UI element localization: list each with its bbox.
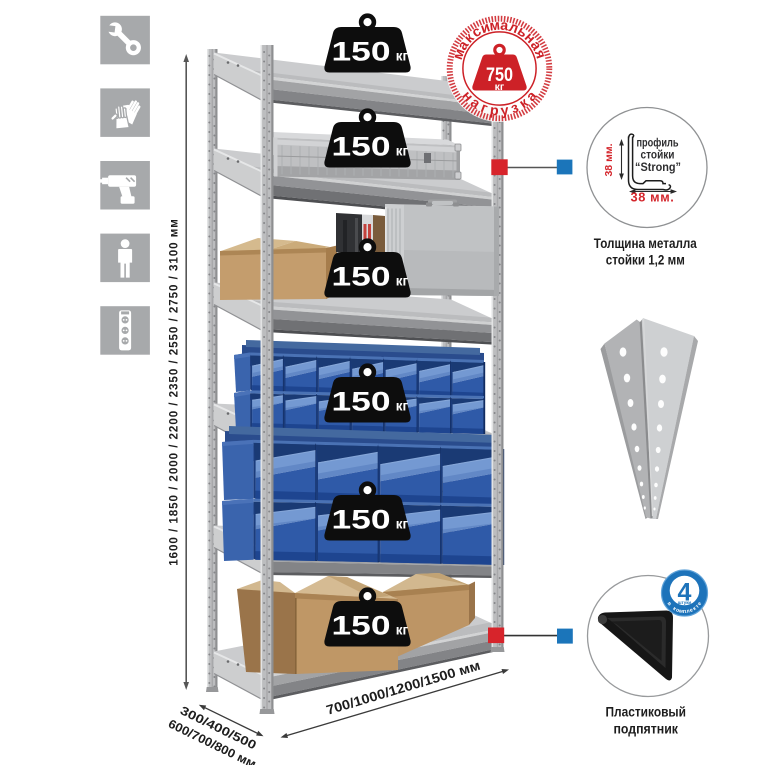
svg-text:38 мм.: 38 мм. (631, 190, 675, 205)
svg-text:кг: кг (396, 274, 409, 289)
svg-text:38 мм.: 38 мм. (603, 143, 615, 176)
svg-text:150: 150 (332, 386, 391, 417)
svg-text:подпятник: подпятник (613, 722, 678, 737)
svg-text:150: 150 (332, 610, 391, 641)
svg-text:150: 150 (332, 36, 391, 67)
svg-text:кг: кг (396, 399, 409, 414)
svg-text:кг: кг (396, 623, 409, 638)
svg-text:150: 150 (332, 131, 391, 162)
svg-text:штуки: штуки (678, 600, 692, 605)
svg-text:профиль: профиль (637, 138, 679, 150)
svg-text:“Strong”: “Strong” (635, 162, 681, 174)
svg-text:Толщина металла: Толщина металла (594, 236, 697, 251)
svg-text:150: 150 (332, 504, 391, 535)
svg-text:кг: кг (396, 49, 409, 64)
svg-text:стойки: стойки (641, 150, 675, 162)
svg-text:кг: кг (495, 81, 505, 93)
svg-text:кг: кг (396, 517, 409, 532)
svg-text:150: 150 (332, 261, 391, 292)
svg-text:стойки 1,2 мм: стойки 1,2 мм (606, 253, 685, 268)
svg-text:кг: кг (396, 144, 409, 159)
svg-text:Пластиковый: Пластиковый (605, 705, 686, 720)
svg-text:1600 / 1850 / 2000 / 2200 / 23: 1600 / 1850 / 2000 / 2200 / 2350 / 2550 … (168, 218, 181, 566)
